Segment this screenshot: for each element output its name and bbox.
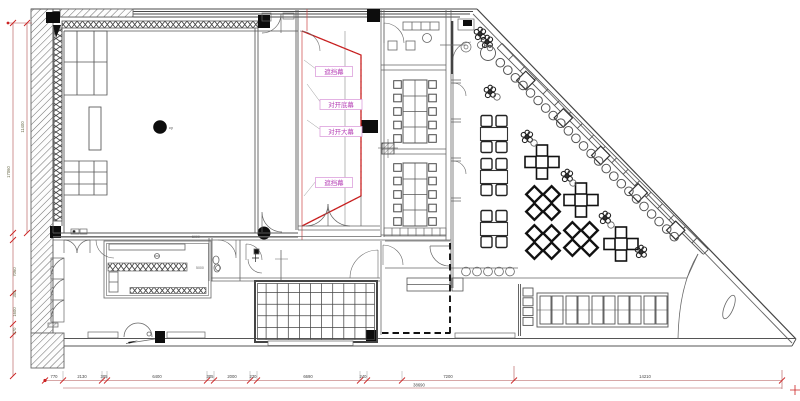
- svg-text:305: 305: [101, 374, 109, 379]
- svg-text:cy: cy: [169, 125, 173, 130]
- svg-text:470: 470: [12, 327, 17, 335]
- svg-text:2130: 2130: [77, 374, 87, 379]
- svg-text:7200: 7200: [443, 374, 453, 379]
- svg-text:38690: 38690: [413, 383, 425, 388]
- svg-text:7060: 7060: [12, 267, 17, 277]
- svg-text:遮挡幕: 遮挡幕: [324, 67, 344, 76]
- svg-text:240: 240: [360, 374, 368, 379]
- svg-text:14210: 14210: [639, 374, 651, 379]
- svg-text:770: 770: [51, 374, 59, 379]
- svg-text:对开大幕: 对开大幕: [328, 127, 354, 136]
- svg-text:6400: 6400: [152, 374, 162, 379]
- svg-text:305: 305: [12, 290, 17, 298]
- svg-text:对开底幕: 对开底幕: [328, 100, 354, 109]
- svg-text:1600: 1600: [12, 307, 17, 317]
- svg-text:230: 230: [250, 374, 258, 379]
- svg-text:6690: 6690: [303, 374, 313, 379]
- svg-text:2000: 2000: [227, 374, 237, 379]
- svg-text:5000: 5000: [196, 266, 204, 270]
- svg-text:11400: 11400: [20, 121, 25, 133]
- svg-text:5000: 5000: [192, 235, 200, 239]
- svg-text:遮挡幕: 遮挡幕: [324, 178, 344, 187]
- svg-text:305: 305: [207, 374, 215, 379]
- svg-text:17060: 17060: [6, 166, 11, 178]
